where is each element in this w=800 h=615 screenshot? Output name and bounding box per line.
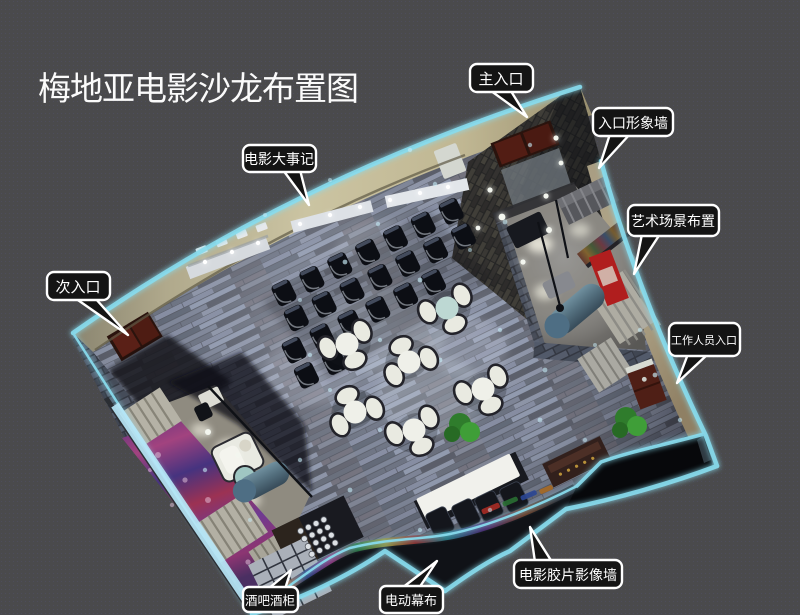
svg-text:入口形象墙: 入口形象墙 bbox=[598, 115, 668, 131]
svg-text:梅地亚电影沙龙布置图: 梅地亚电影沙龙布置图 bbox=[38, 70, 358, 107]
svg-text:电动幕布: 电动幕布 bbox=[385, 593, 437, 608]
svg-text:工作人员入口: 工作人员入口 bbox=[671, 334, 737, 347]
svg-text:艺术场景布置: 艺术场景布置 bbox=[631, 213, 715, 229]
svg-text:酒吧酒柜: 酒吧酒柜 bbox=[245, 594, 295, 608]
svg-text:电影大事记: 电影大事记 bbox=[244, 151, 314, 167]
svg-text:电影胶片影像墙: 电影胶片影像墙 bbox=[519, 567, 617, 583]
svg-text:主入口: 主入口 bbox=[478, 71, 523, 88]
svg-text:次入口: 次入口 bbox=[55, 279, 100, 296]
